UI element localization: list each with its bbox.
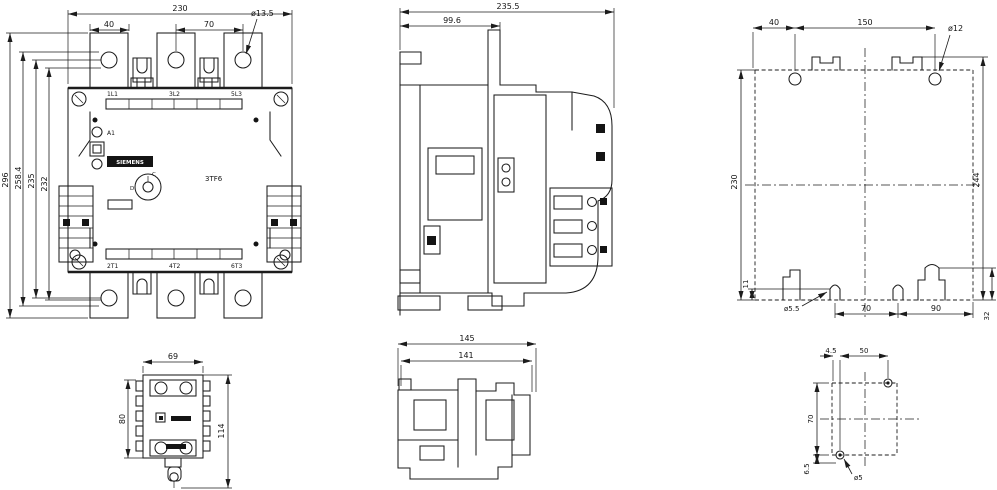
mounting-hole xyxy=(929,73,941,85)
dim-front-pitch-a: 40 xyxy=(104,20,114,29)
dim-front-height-1: 296 xyxy=(1,172,10,187)
ground-lug xyxy=(165,458,181,488)
indicator-letter-d: D xyxy=(130,186,134,192)
coil-terminal-a1: A1 xyxy=(107,130,115,137)
terminal-label-1l1: 1L1 xyxy=(107,91,118,98)
dim-aux-edge-offset: 6.5 xyxy=(803,463,811,474)
dim-bottom-width: 69 xyxy=(168,352,178,361)
dim-plan-foot-height: 32 xyxy=(983,312,991,321)
aux-contact-block-right xyxy=(267,186,301,262)
dim-plan-slot-pitch: 70 xyxy=(861,304,871,313)
aux-mounting-plan-view: 4.5 50 70 6.5 ø5 xyxy=(803,347,922,482)
bside-outline xyxy=(398,379,530,479)
bottom-terminal-tabs xyxy=(90,272,262,318)
dim-plan-height: 230 xyxy=(730,174,739,189)
dim-aux-hole-dia: ø5 xyxy=(854,474,863,482)
plan-slot xyxy=(830,285,840,300)
mounting-hole xyxy=(789,73,801,85)
mounting-plan-view: 40 150 ø12 230 11 244 32 70 xyxy=(730,18,996,320)
indicator-letter-c: C xyxy=(152,172,156,178)
dim-plan-overall-height: 244 xyxy=(972,172,981,187)
contactor-dimension-drawing: 1L1 3L2 5L3 A1 A2 SIEMENS 3TF6 C D 2T1 xyxy=(0,0,997,490)
dim-terminal-hole-dia: ø13.5 xyxy=(251,9,274,18)
bottom-view: 69 80 114 xyxy=(118,352,232,488)
aux-contact-block-left xyxy=(59,186,93,262)
terminal-label-3l2: 3L2 xyxy=(169,91,180,98)
side-outline xyxy=(398,30,612,315)
dim-plan-top-hole-dia: ø12 xyxy=(948,24,963,33)
dim-aux-pitch-y: 70 xyxy=(807,415,815,424)
bottom-nameplate-bar xyxy=(166,444,186,449)
dim-front-height-3: 235 xyxy=(27,173,36,188)
dim-aux-pitch-x: 50 xyxy=(860,347,869,355)
plan-bottom-tab xyxy=(783,270,800,300)
dim-bottom-depth-body: 80 xyxy=(118,414,127,424)
plan-top-tab xyxy=(892,57,922,70)
dim-plan-slot-edge: 90 xyxy=(931,304,941,313)
dim-front-height-4: 232 xyxy=(40,176,49,191)
plan-bottom-tab xyxy=(918,265,945,301)
plan-slot xyxy=(893,285,903,300)
brand-label: SIEMENS xyxy=(116,160,144,166)
dim-bside-width-1: 145 xyxy=(459,334,474,343)
dim-front-width: 230 xyxy=(172,4,187,13)
terminal-hole xyxy=(235,52,251,68)
bottom-side-view: 145 141 xyxy=(398,334,536,479)
model-label: 3TF6 xyxy=(205,175,223,183)
dim-plan-offset-x: 40 xyxy=(769,18,779,27)
dim-side-depth: 235.5 xyxy=(497,2,520,11)
dim-plan-notch: 11 xyxy=(742,280,750,289)
dim-bside-width-2: 141 xyxy=(458,351,473,360)
dim-aux-offset: 4.5 xyxy=(825,347,836,355)
dim-plan-slot-dia: ø5.5 xyxy=(784,305,799,313)
front-view: 1L1 3L2 5L3 A1 A2 SIEMENS 3TF6 C D 2T1 xyxy=(1,4,301,318)
dim-plan-pitch-x: 150 xyxy=(857,18,872,27)
dim-front-height-2: 258.4 xyxy=(14,167,23,190)
position-indicator-dial: C D xyxy=(130,172,161,200)
dim-front-pitch-b: 70 xyxy=(204,20,214,29)
terminal-label-6t3: 6T3 xyxy=(231,263,242,270)
terminal-hole xyxy=(168,52,184,68)
terminal-label-4t2: 4T2 xyxy=(169,263,180,270)
terminal-hole xyxy=(101,52,117,68)
plan-top-tab xyxy=(812,57,840,70)
terminal-label-5l3: 5L3 xyxy=(231,91,242,98)
terminal-label-2t1: 2T1 xyxy=(107,263,118,270)
side-internal-detail xyxy=(420,85,612,293)
dim-bottom-depth-total: 114 xyxy=(217,423,226,438)
side-view: 235.5 99.6 xyxy=(398,2,614,315)
plan-center-lines xyxy=(745,48,982,318)
dim-side-depth-front: 99.6 xyxy=(443,16,461,25)
aux-center-lines xyxy=(820,372,922,466)
